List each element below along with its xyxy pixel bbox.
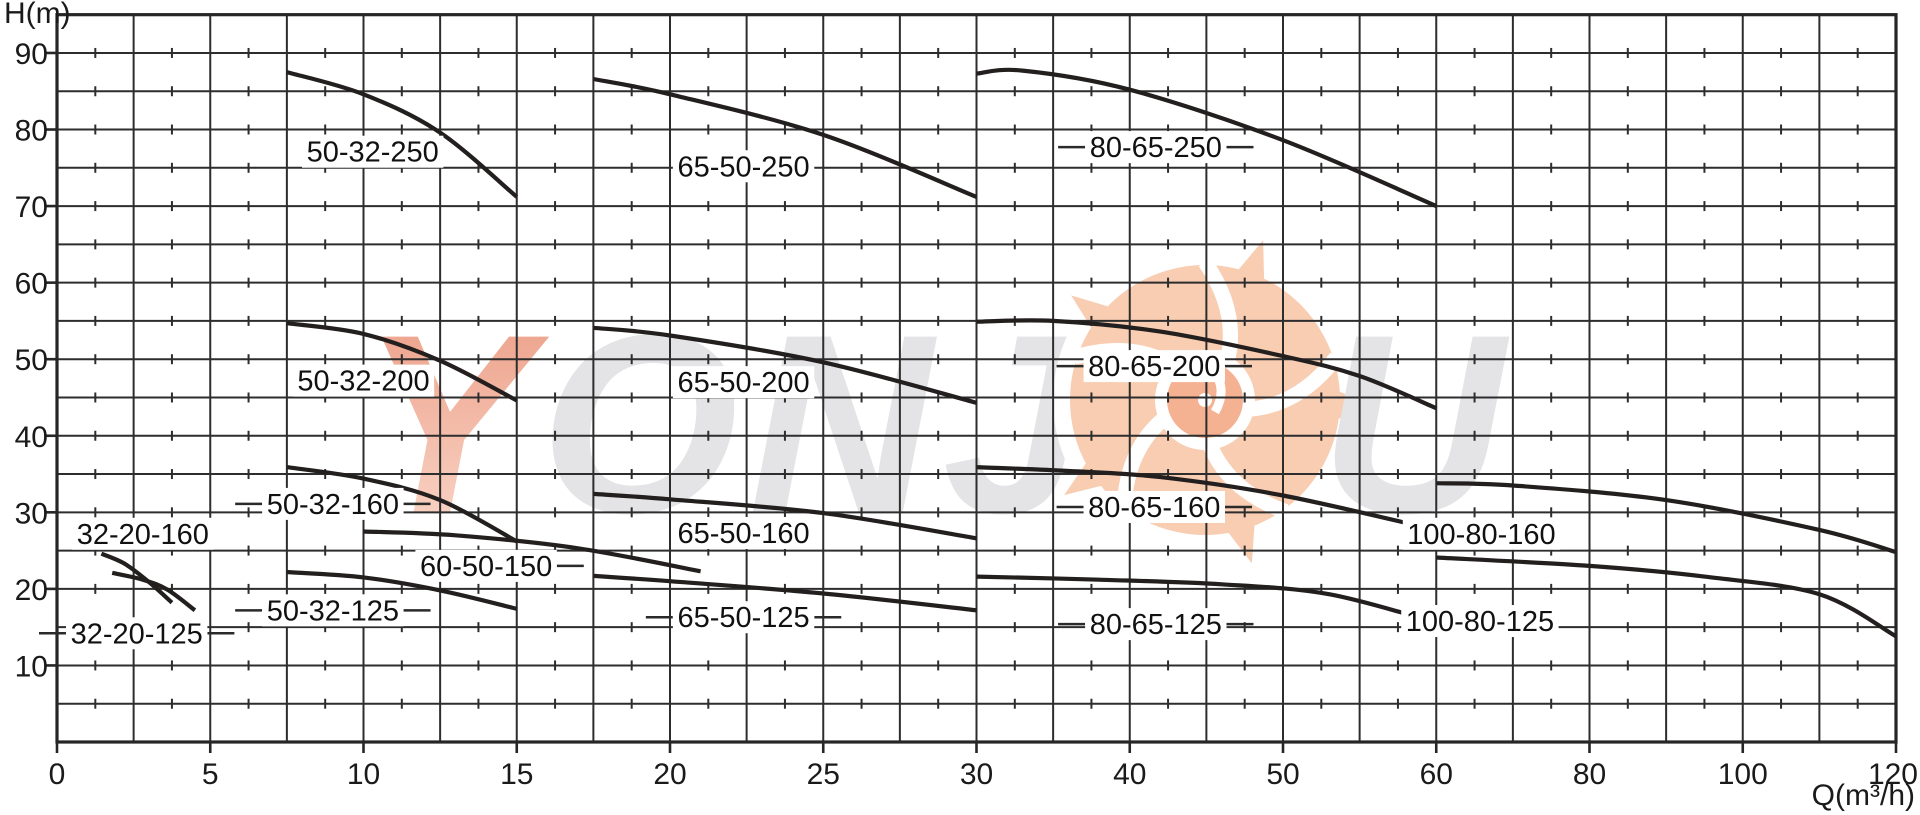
svg-text:65-50-125: 65-50-125 bbox=[677, 602, 809, 634]
svg-text:5: 5 bbox=[202, 758, 219, 791]
svg-text:20: 20 bbox=[15, 574, 48, 607]
svg-text:30: 30 bbox=[15, 497, 48, 530]
curve-label-80-65-200: 80-65-200 bbox=[1057, 350, 1252, 383]
svg-text:80-65-250: 80-65-250 bbox=[1090, 132, 1222, 164]
svg-text:65-50-160: 65-50-160 bbox=[677, 518, 809, 550]
curve-label-50-32-200: 50-32-200 bbox=[293, 365, 434, 398]
curve-label-65-50-125: 65-50-125 bbox=[646, 601, 841, 634]
curve-label-65-50-160: 65-50-160 bbox=[673, 517, 814, 550]
curve-label-100-80-125: 100-80-125 bbox=[1401, 605, 1558, 638]
svg-text:32-20-160: 32-20-160 bbox=[77, 519, 209, 551]
curve-label-50-32-160: 50-32-160 bbox=[235, 488, 430, 521]
y-axis-tick-labels: 102030405060708090 bbox=[15, 38, 48, 683]
curve-label-65-50-200: 65-50-200 bbox=[673, 366, 814, 399]
svg-text:90: 90 bbox=[15, 38, 48, 71]
svg-text:10: 10 bbox=[15, 650, 48, 683]
svg-text:32-20-125: 32-20-125 bbox=[71, 618, 203, 650]
svg-text:80: 80 bbox=[15, 115, 48, 148]
curve-label-50-32-250: 50-32-250 bbox=[302, 136, 443, 169]
svg-text:100-80-160: 100-80-160 bbox=[1407, 519, 1555, 551]
curve-label-80-65-250: 80-65-250 bbox=[1058, 131, 1253, 164]
x-axis-title: Q(m³/h) bbox=[1812, 780, 1915, 812]
curve-label-65-50-250: 65-50-250 bbox=[673, 150, 814, 183]
svg-text:0: 0 bbox=[49, 758, 66, 791]
svg-text:20: 20 bbox=[653, 758, 686, 791]
curve-label-80-65-125: 80-65-125 bbox=[1058, 608, 1253, 641]
svg-text:50: 50 bbox=[15, 344, 48, 377]
pump-performance-chart: YONJU32-20-16032-20-12550-32-25050-32-20… bbox=[0, 0, 1920, 815]
svg-text:80-65-200: 80-65-200 bbox=[1088, 351, 1220, 383]
svg-text:30: 30 bbox=[960, 758, 993, 791]
svg-text:80-65-125: 80-65-125 bbox=[1090, 609, 1222, 641]
svg-text:40: 40 bbox=[15, 421, 48, 454]
curve-label-50-32-125: 50-32-125 bbox=[235, 594, 430, 627]
y-axis-title: H(m) bbox=[4, 0, 71, 30]
svg-text:15: 15 bbox=[500, 758, 533, 791]
curve-label-32-20-125: 32-20-125 bbox=[39, 617, 234, 650]
curve-label-100-80-160: 100-80-160 bbox=[1403, 518, 1560, 551]
chart-canvas: YONJU32-20-16032-20-12550-32-25050-32-20… bbox=[0, 0, 1920, 815]
svg-text:65-50-200: 65-50-200 bbox=[677, 367, 809, 399]
svg-text:65-50-250: 65-50-250 bbox=[677, 151, 809, 183]
svg-text:50-32-125: 50-32-125 bbox=[267, 595, 399, 627]
svg-text:50-32-200: 50-32-200 bbox=[297, 366, 429, 398]
svg-text:50: 50 bbox=[1266, 758, 1299, 791]
watermark: YONJU bbox=[360, 235, 1514, 569]
svg-text:60: 60 bbox=[1420, 758, 1453, 791]
svg-text:50-32-250: 50-32-250 bbox=[307, 137, 439, 169]
svg-text:25: 25 bbox=[807, 758, 840, 791]
svg-text:70: 70 bbox=[15, 191, 48, 224]
curve-32-20-125 bbox=[112, 573, 195, 611]
svg-text:60-50-150: 60-50-150 bbox=[420, 551, 552, 583]
svg-text:40: 40 bbox=[1113, 758, 1146, 791]
svg-text:60: 60 bbox=[15, 268, 48, 301]
svg-text:50-32-160: 50-32-160 bbox=[267, 489, 399, 521]
svg-text:10: 10 bbox=[347, 758, 380, 791]
x-axis-tick-labels: 05101520253040506080100120 bbox=[49, 758, 1918, 791]
curve-label-32-20-160: 32-20-160 bbox=[72, 518, 213, 551]
curve-label-80-65-160: 80-65-160 bbox=[1057, 491, 1252, 524]
svg-text:100: 100 bbox=[1718, 758, 1768, 791]
svg-text:80-65-160: 80-65-160 bbox=[1088, 492, 1220, 524]
svg-text:80: 80 bbox=[1573, 758, 1606, 791]
svg-text:100-80-125: 100-80-125 bbox=[1406, 606, 1554, 638]
